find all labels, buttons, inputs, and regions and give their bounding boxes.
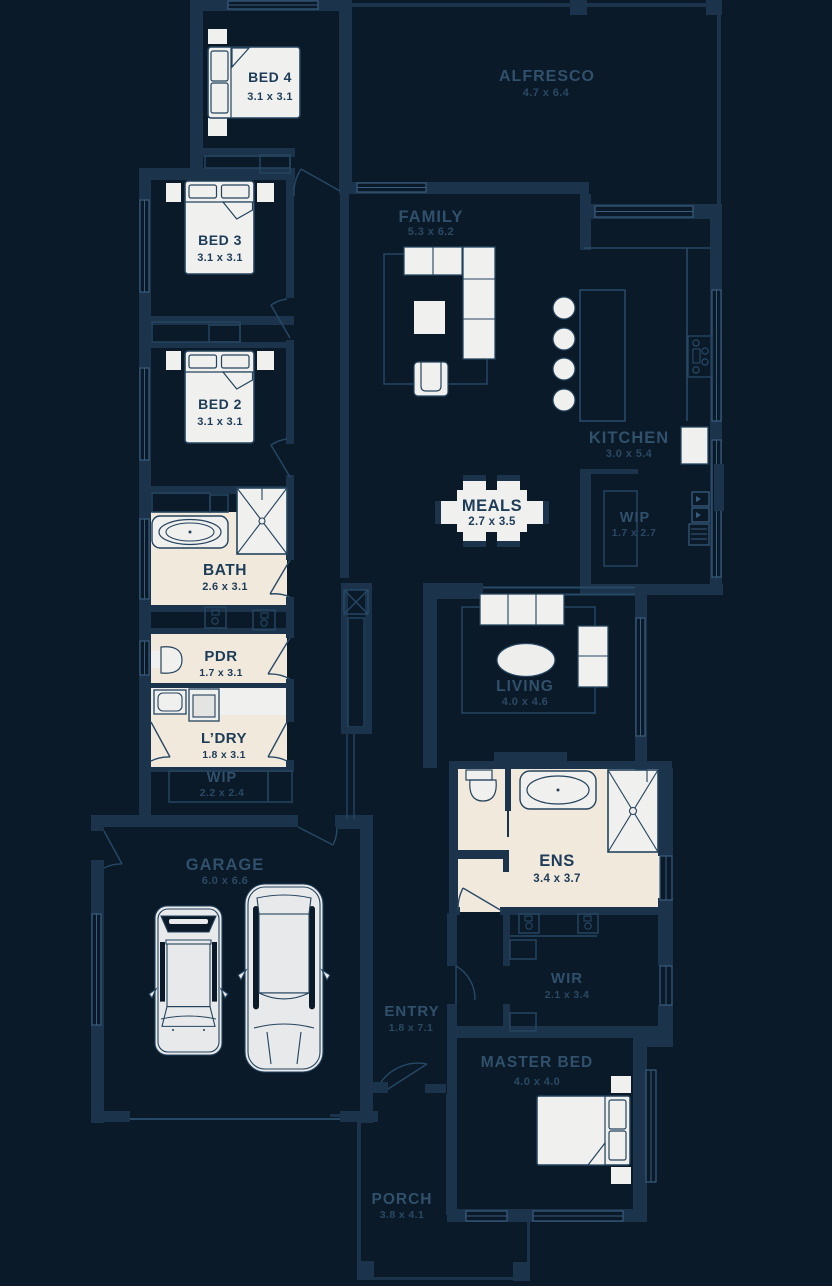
svg-text:3.4 x 3.7: 3.4 x 3.7 [533,873,580,885]
svg-text:ALFRESCO: ALFRESCO [499,68,595,85]
svg-text:BED 3: BED 3 [198,232,242,248]
svg-text:4.0 x 4.0: 4.0 x 4.0 [514,1076,560,1088]
svg-text:MASTER BED: MASTER BED [481,1054,593,1071]
svg-text:PDR: PDR [204,648,237,665]
svg-text:3.1 x 3.1: 3.1 x 3.1 [197,252,243,264]
svg-text:GARAGE: GARAGE [186,856,264,874]
svg-text:6.0 x 6.6: 6.0 x 6.6 [202,875,248,887]
svg-text:2.2 x 2.4: 2.2 x 2.4 [200,787,244,799]
svg-text:L’DRY: L’DRY [201,730,247,747]
svg-text:ENTRY: ENTRY [384,1003,439,1020]
svg-text:LIVING: LIVING [496,678,554,695]
svg-text:WIP: WIP [620,510,650,526]
svg-text:5.3 x 6.2: 5.3 x 6.2 [408,226,454,238]
svg-text:2.7 x 3.5: 2.7 x 3.5 [468,516,516,528]
svg-text:WIR: WIR [551,970,583,987]
svg-text:BATH: BATH [203,562,247,579]
svg-text:3.0 x 5.4: 3.0 x 5.4 [606,448,653,460]
svg-text:4.0 x 4.6: 4.0 x 4.6 [502,696,548,708]
svg-text:2.6 x 3.1: 2.6 x 3.1 [202,581,248,593]
svg-text:4.7 x 6.4: 4.7 x 6.4 [523,87,570,99]
svg-text:BED 4: BED 4 [248,69,292,85]
svg-text:PORCH: PORCH [372,1191,433,1208]
svg-text:1.7 x 2.7: 1.7 x 2.7 [612,527,656,539]
svg-text:BED 2: BED 2 [198,396,242,412]
svg-text:ENS: ENS [539,852,574,870]
svg-text:1.8 x 7.1: 1.8 x 7.1 [389,1022,433,1034]
svg-text:KITCHEN: KITCHEN [589,429,669,447]
svg-text:3.1 x 3.1: 3.1 x 3.1 [197,416,243,428]
svg-text:1.7 x 3.1: 1.7 x 3.1 [199,667,243,679]
svg-text:1.8 x 3.1: 1.8 x 3.1 [202,749,246,761]
svg-text:WIP: WIP [207,770,237,786]
svg-text:MEALS: MEALS [462,497,522,515]
svg-text:3.1 x 3.1: 3.1 x 3.1 [247,91,293,103]
svg-text:FAMILY: FAMILY [399,208,464,226]
svg-text:2.1 x 3.4: 2.1 x 3.4 [545,989,589,1001]
svg-text:3.8 x 4.1: 3.8 x 4.1 [380,1209,424,1221]
